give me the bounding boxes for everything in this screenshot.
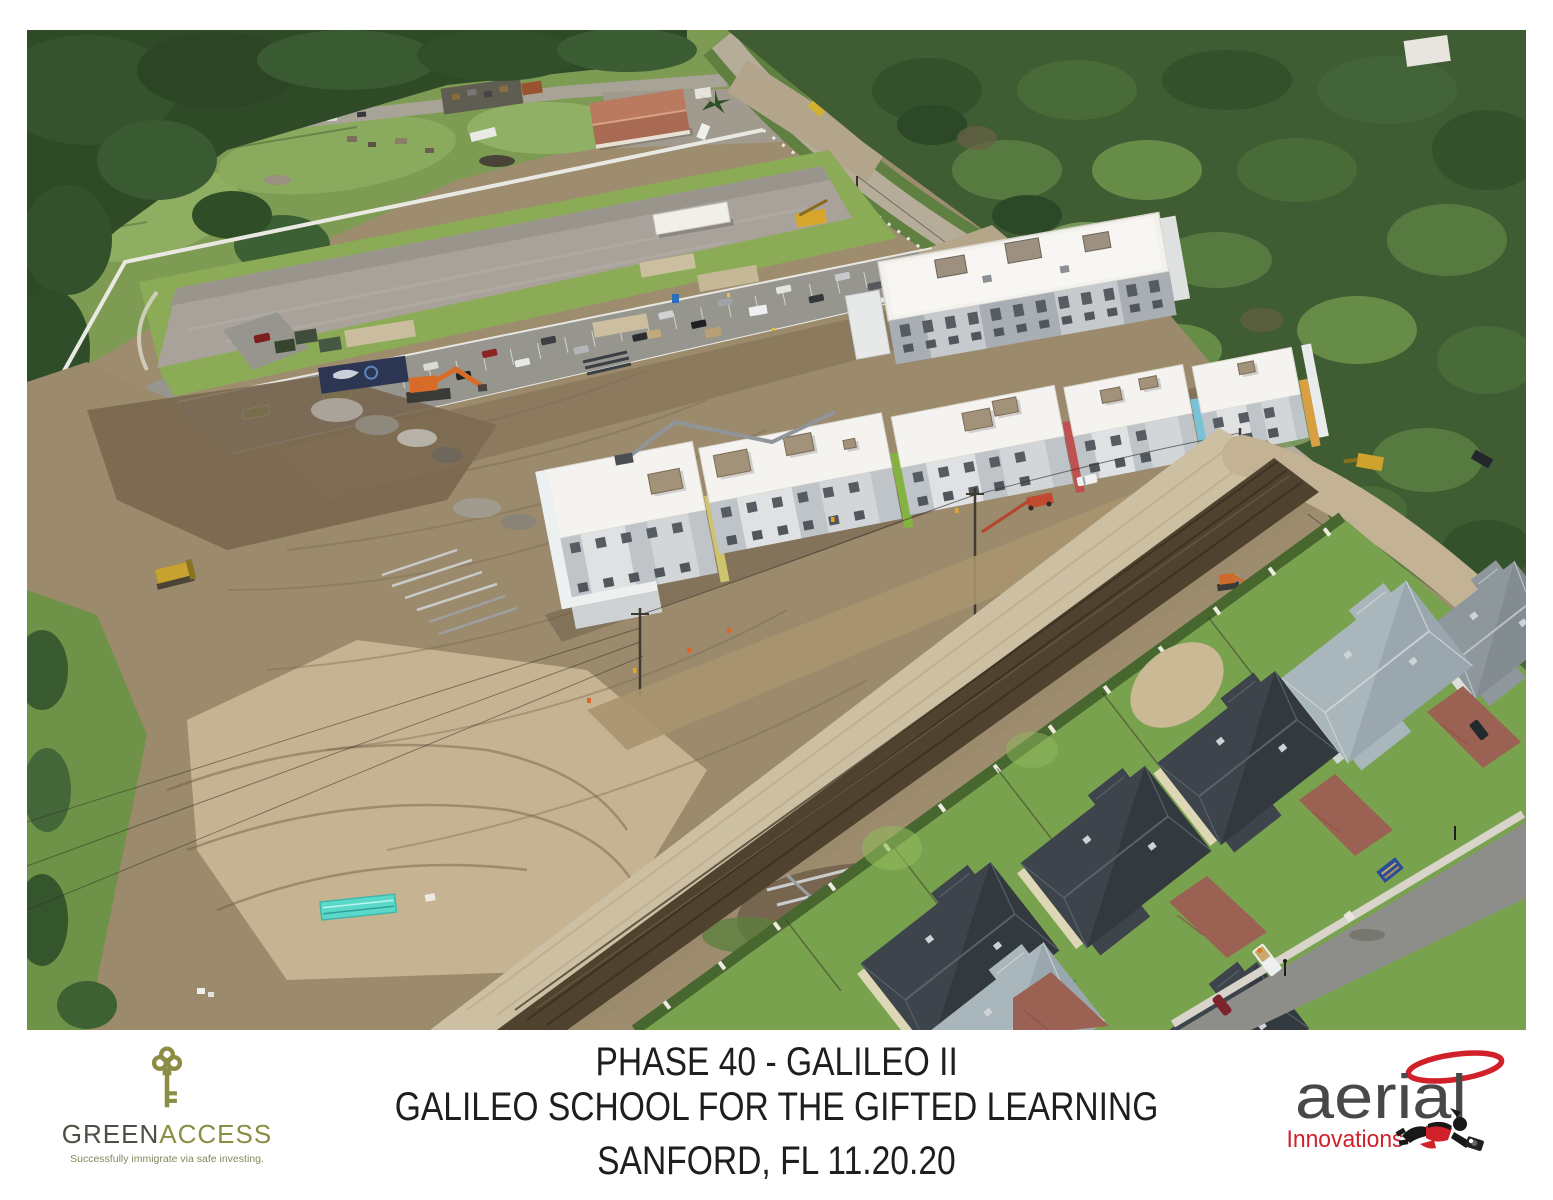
construction-site-aerial-photo <box>27 30 1526 1030</box>
aerial-innovations-logo: aerial Innovations <box>1268 1038 1538 1198</box>
page: { "caption": { "line1": "PHASE 40 - GALI… <box>0 0 1553 1200</box>
aerial-photo-canvas <box>27 30 1526 1030</box>
footer: GREENACCESS Successfully immigrate via s… <box>0 1030 1553 1200</box>
innovations-wordmark: Innovations <box>1287 1126 1404 1153</box>
aerial-wordmark: aerial <box>1295 1063 1467 1132</box>
aerial-innovations-mark: aerial Innovations <box>1268 1038 1538 1193</box>
